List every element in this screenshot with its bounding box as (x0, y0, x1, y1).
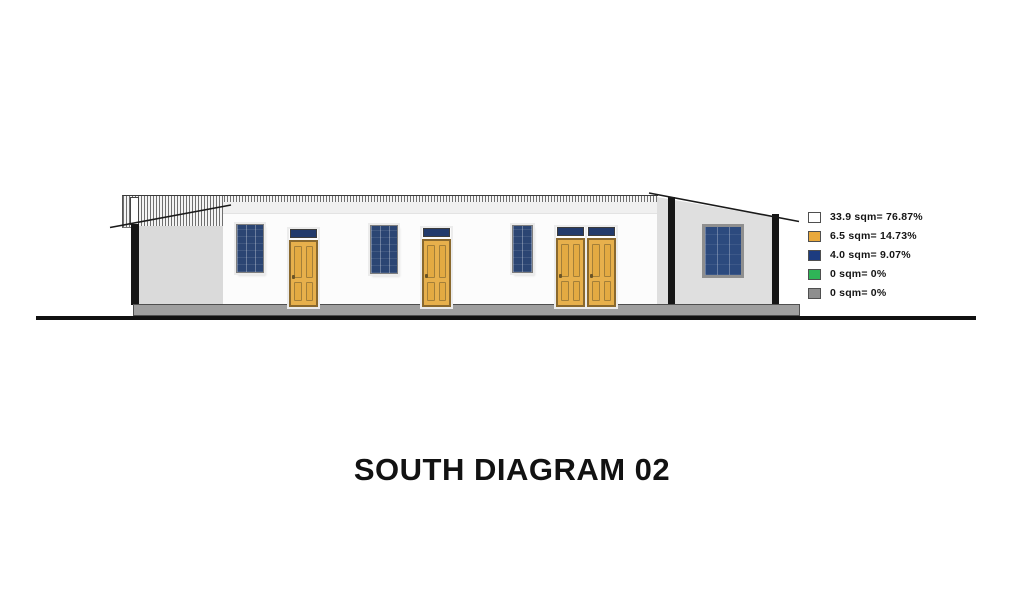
door-2-transom-window (423, 228, 450, 237)
door-4 (587, 227, 616, 307)
door-panel (592, 281, 600, 301)
door-panel (592, 244, 600, 277)
legend-row-doors: 6.5 sqm= 14.73% (808, 230, 923, 242)
legend-row-gray: 0 sqm= 0% (808, 287, 923, 299)
right-section-left-post (668, 197, 675, 305)
left-post (131, 224, 139, 305)
area-legend: 33.9 sqm= 76.87% 6.5 sqm= 14.73% 4.0 sqm… (808, 211, 923, 299)
door-handle (292, 275, 295, 279)
door-panel (294, 246, 302, 278)
door-panel (604, 244, 612, 277)
door-panel (573, 281, 581, 301)
legend-swatch-blue (808, 250, 821, 261)
door-panel (439, 245, 447, 278)
facade-eave-shadow (223, 202, 665, 214)
door-handle (559, 274, 562, 278)
door-handle (590, 274, 593, 278)
door-panel (561, 244, 569, 277)
legend-row-walls: 33.9 sqm= 76.87% (808, 211, 923, 223)
legend-label: 33.9 sqm= 76.87% (830, 211, 923, 223)
door-3 (556, 227, 585, 307)
plinth-slab (133, 304, 800, 316)
window-4-large (702, 224, 744, 278)
door-panel (306, 282, 314, 301)
door-panel (427, 245, 435, 278)
door-1-leaf (289, 240, 318, 307)
legend-swatch-green (808, 269, 821, 280)
legend-label: 6.5 sqm= 14.73% (830, 230, 917, 242)
window-2 (370, 225, 398, 274)
legend-swatch-orange (808, 231, 821, 242)
right-section-right-post (772, 214, 779, 305)
legend-label: 0 sqm= 0% (830, 287, 886, 299)
door-1 (289, 229, 318, 307)
door-4-transom-window (588, 227, 615, 236)
door-2-leaf (422, 239, 451, 307)
door-1-transom-window (290, 229, 317, 238)
left-gray-wall (139, 226, 225, 306)
door-panel (294, 282, 302, 301)
legend-swatch-gray (808, 288, 821, 299)
door-panel (604, 281, 612, 301)
diagram-title: SOUTH DIAGRAM 02 (0, 452, 1024, 488)
door-panel (561, 281, 569, 301)
legend-row-windows: 4.0 sqm= 9.07% (808, 249, 923, 261)
roof-post-slot (130, 197, 139, 225)
door-4-leaf (587, 238, 616, 307)
south-elevation-diagram: 33.9 sqm= 76.87% 6.5 sqm= 14.73% 4.0 sqm… (0, 0, 1024, 597)
legend-label: 4.0 sqm= 9.07% (830, 249, 911, 261)
door-3-leaf (556, 238, 585, 307)
window-1 (236, 224, 264, 273)
door-panel (427, 282, 435, 301)
ground-line (36, 316, 976, 320)
door-handle (425, 274, 428, 278)
door-panel (306, 246, 314, 278)
window-3 (512, 225, 533, 273)
door-2 (422, 228, 451, 307)
legend-label: 0 sqm= 0% (830, 268, 886, 280)
door-panel (439, 282, 447, 301)
door-panel (573, 244, 581, 277)
door-3-transom-window (557, 227, 584, 236)
legend-swatch-white (808, 212, 821, 223)
legend-row-green: 0 sqm= 0% (808, 268, 923, 280)
